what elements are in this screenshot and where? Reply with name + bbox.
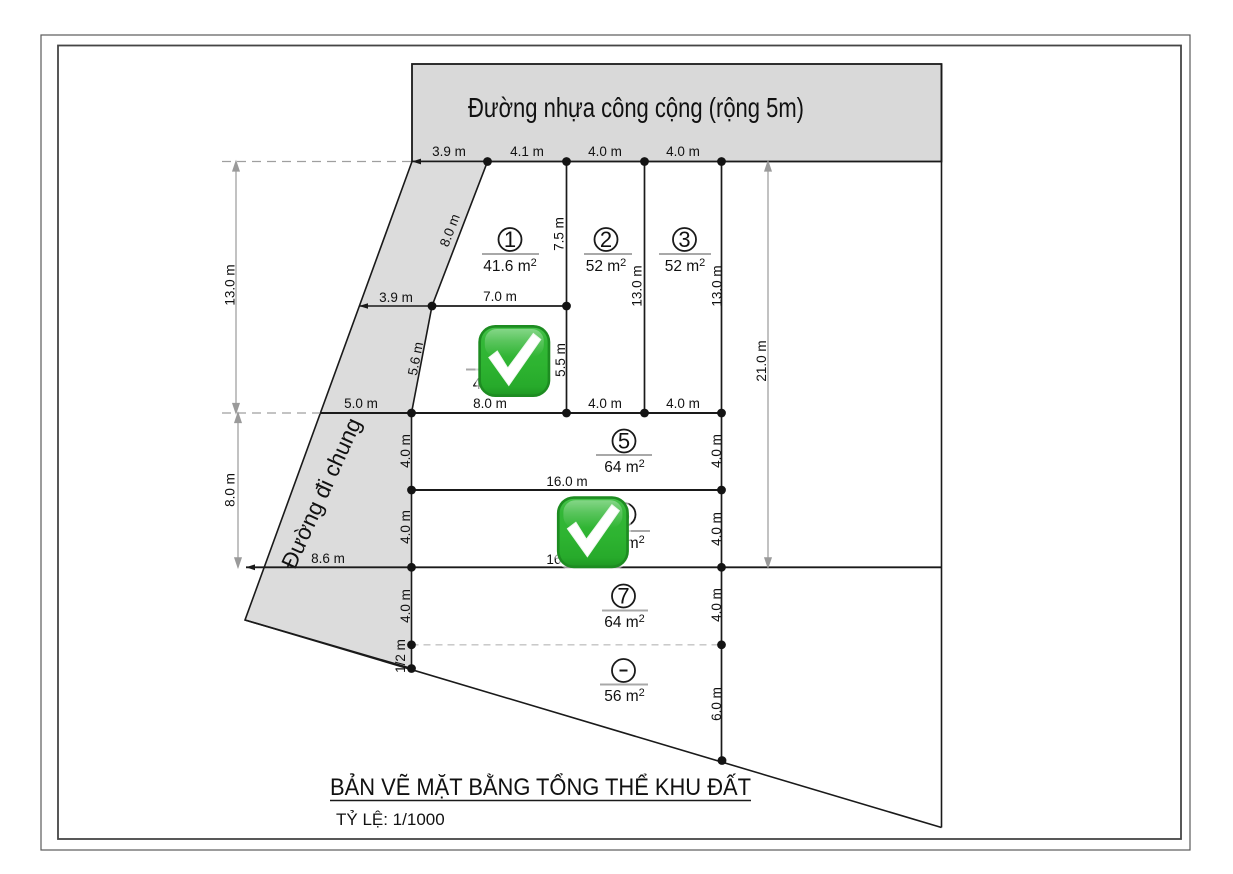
- svg-text:1: 1: [504, 227, 516, 252]
- svg-text:4.0 m: 4.0 m: [588, 396, 622, 411]
- svg-text:5: 5: [618, 429, 630, 454]
- svg-text:4.0 m: 4.0 m: [398, 510, 413, 544]
- svg-text:13.0 m: 13.0 m: [223, 264, 238, 305]
- svg-text:5.5 m: 5.5 m: [553, 343, 568, 377]
- svg-text:3: 3: [678, 227, 690, 252]
- svg-text:3.9 m: 3.9 m: [379, 290, 413, 305]
- svg-text:4.0 m: 4.0 m: [588, 144, 622, 159]
- svg-text:21.0 m: 21.0 m: [754, 340, 769, 381]
- svg-text:7.0 m: 7.0 m: [483, 289, 517, 304]
- svg-text:4.0 m: 4.0 m: [709, 434, 724, 468]
- svg-text:1/2 m: 1/2 m: [393, 639, 408, 673]
- svg-text:4.0 m: 4.0 m: [666, 144, 700, 159]
- svg-text:4.0 m: 4.0 m: [398, 434, 413, 468]
- svg-text:4.0 m: 4.0 m: [398, 589, 413, 623]
- svg-text:6.0 m: 6.0 m: [709, 687, 724, 721]
- svg-text:TỶ LỆ: 1/1000: TỶ LỆ: 1/1000: [336, 810, 445, 829]
- svg-text:3.9 m: 3.9 m: [432, 144, 466, 159]
- svg-text:7: 7: [617, 584, 629, 609]
- svg-text:7.5 m: 7.5 m: [552, 217, 567, 251]
- svg-text:4.1 m: 4.1 m: [510, 144, 544, 159]
- svg-text:41.6 m2: 41.6 m2: [483, 257, 537, 275]
- svg-text:Đường nhựa công cộng (rộng 5m): Đường nhựa công cộng (rộng 5m): [468, 92, 804, 123]
- svg-text:16.0 m: 16.0 m: [546, 474, 587, 489]
- svg-text:BẢN VẼ MẶT BẰNG TỔNG THỂ KHU Đ: BẢN VẼ MẶT BẰNG TỔNG THỂ KHU ĐẤT: [330, 772, 751, 801]
- svg-text:8.0 m: 8.0 m: [223, 473, 238, 507]
- svg-text:4.0 m: 4.0 m: [666, 396, 700, 411]
- svg-text:4.0 m: 4.0 m: [709, 512, 724, 546]
- svg-text:2: 2: [600, 227, 612, 252]
- svg-text:13.0 m: 13.0 m: [630, 265, 645, 306]
- svg-text:4.0 m: 4.0 m: [709, 588, 724, 622]
- svg-text:8.6 m: 8.6 m: [311, 551, 345, 566]
- svg-text:5.0 m: 5.0 m: [344, 396, 378, 411]
- svg-text:13.0 m: 13.0 m: [710, 265, 725, 306]
